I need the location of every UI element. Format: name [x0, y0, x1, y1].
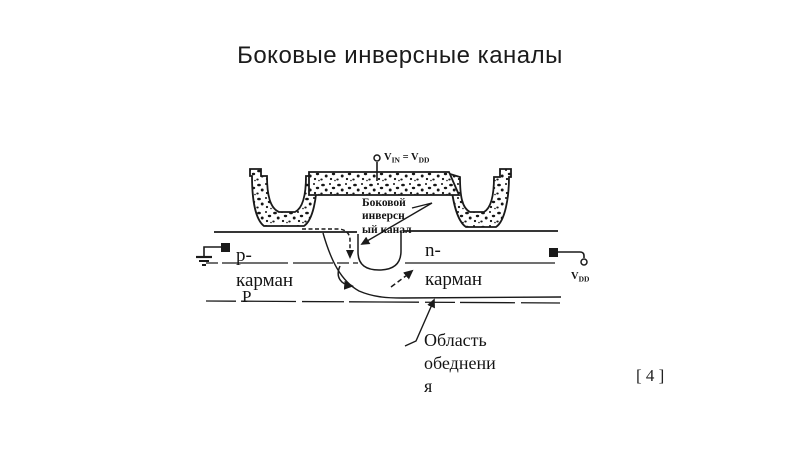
inversion-channel-arrowhead	[346, 250, 354, 259]
substrate-boundary-line	[206, 301, 560, 303]
depletion-region-label: Область обеднени я	[424, 330, 500, 396]
vdd-terminal-node	[581, 259, 587, 265]
vdd-wire	[558, 252, 584, 258]
n-well-contact-node	[549, 248, 558, 257]
substrate-label: P	[242, 287, 251, 306]
ground-icon	[196, 257, 212, 265]
cmos-cross-section-diagram: VIN = VDD Боковой инверсн ый канал p- ка…	[0, 0, 800, 450]
ground-wire	[204, 247, 222, 256]
p-well-contact-node	[221, 243, 230, 252]
slide-canvas: Боковые инверсные каналы	[0, 0, 800, 450]
vdd-label: VDD	[571, 271, 590, 284]
citation-reference: [ 4 ]	[636, 366, 664, 386]
n-well-label: n- карман	[425, 240, 482, 290]
left-field-oxide	[250, 169, 317, 226]
gate-electrode	[309, 172, 459, 195]
channel-label: Боковой инверсн ый канал	[362, 197, 412, 236]
current-flow-arrow-left	[338, 266, 352, 286]
junction-depletion-u	[358, 231, 401, 270]
p-well-label: p- карман	[236, 245, 293, 291]
gate-voltage-label: VIN = VDD	[384, 152, 430, 165]
current-flow-arrow-right	[391, 271, 412, 287]
gate-terminal-node	[374, 155, 380, 161]
right-field-oxide	[450, 169, 511, 227]
